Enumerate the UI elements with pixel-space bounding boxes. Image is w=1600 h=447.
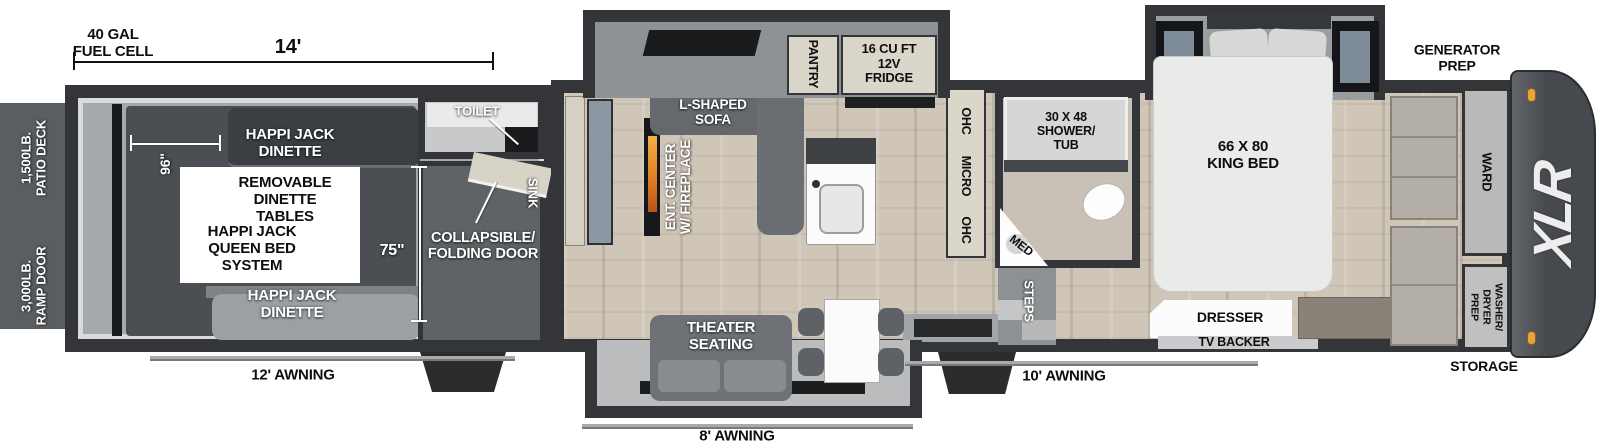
sofa-chaise [757, 93, 804, 235]
front-wardrobe-lower [1390, 226, 1458, 346]
clearance-light-bottom [1527, 331, 1536, 345]
washer-dryer-label: WASHER/ DRYER PREP [1468, 283, 1503, 331]
fireplace-flame [648, 136, 657, 212]
theater-label: THEATER SEATING [687, 320, 755, 354]
dim-75-tick-top [411, 166, 427, 168]
dim-75-label: 75" [380, 242, 405, 260]
chair-3 [878, 308, 904, 336]
sink-label: SINK [525, 178, 540, 208]
steps-label: STEPS [1021, 280, 1036, 322]
wardrobe-shelf-2 [1392, 176, 1456, 178]
wardrobe-shelf-3 [1392, 284, 1456, 286]
clearance-light-top [1527, 88, 1536, 102]
skylight [643, 30, 761, 56]
dim-14-tick-right [492, 52, 494, 70]
awning-12-label: 12' AWNING [251, 368, 335, 385]
awning-8-label: 8' AWNING [699, 429, 774, 446]
step-tread-2 [1022, 320, 1056, 340]
dim-75-tick-bottom [411, 320, 427, 322]
theater-cushion-right [724, 360, 786, 392]
dim-96-line [131, 143, 221, 145]
entry-cabinet [565, 96, 585, 246]
bedroom-cabinet [1298, 297, 1400, 339]
front-wardrobe-upper [1390, 96, 1458, 220]
ent-center-label: ENT. CENTER W/ FIREPLACE [663, 140, 693, 234]
ramp-door-label: 3,000LB. RAMP DOOR [19, 247, 48, 326]
headboard [1207, 13, 1331, 29]
dinette-table [824, 299, 880, 383]
dim-96-label: 96" [158, 153, 174, 175]
kitchen-sink [819, 184, 864, 234]
pantry-label: PANTRY [806, 40, 820, 89]
sofa-label: L-SHAPED SOFA [679, 97, 746, 127]
chair-1 [798, 308, 824, 336]
awning-10-bar [905, 361, 1258, 366]
dim-14-line [74, 61, 494, 63]
kitchen-island-back [806, 138, 876, 164]
awning-12-bar [150, 356, 515, 361]
tv-backer-label: TV BACKER [1198, 335, 1269, 349]
generator-prep-label: GENERATOR PREP [1414, 42, 1500, 73]
ramp-door-frame [112, 104, 122, 336]
toilet-fixture [505, 127, 538, 152]
floorplan-canvas: 40 GAL FUEL CELL 14' GENERATOR PREP 1,50… [0, 0, 1600, 447]
ohc-right-label: OHC [959, 216, 973, 243]
patio-deck-label: 1,500LB. PATIO DECK [19, 120, 48, 196]
removable-tables-label: REMOVABLE DINETTE TABLES [239, 175, 332, 225]
dim-75-line [419, 167, 421, 322]
fridge-counter [845, 97, 935, 108]
fuel-cell-label: 40 GAL FUEL CELL [73, 27, 153, 61]
toilet-label: TOILET [455, 105, 500, 120]
ward-label: WARD [1479, 153, 1494, 192]
dim-96-tick-left [130, 135, 132, 151]
chair-4 [878, 348, 904, 376]
storage-label: STORAGE [1450, 359, 1518, 375]
dinette-top-label: HAPPI JACK DINETTE [246, 127, 335, 161]
chair-2 [798, 348, 824, 376]
dinette-bottom-label: HAPPI JACK DINETTE [248, 288, 337, 322]
dim-14-tick-left [73, 52, 75, 70]
queen-bed-label: HAPPI JACK QUEEN BED SYSTEM [208, 224, 297, 274]
brand-logo: XLR [1523, 159, 1583, 269]
cooktop [914, 319, 992, 337]
dresser-label: DRESSER [1197, 310, 1263, 326]
bedroom-window-right-glass [1340, 31, 1370, 83]
shower-ledge [1004, 160, 1128, 172]
awning-10-label: 10' AWNING [1022, 369, 1106, 386]
fridge-label: 16 CU FT 12V FRIDGE [862, 42, 917, 86]
entry-door [587, 99, 613, 245]
main-entry-step [938, 352, 1016, 394]
folding-door-label: COLLAPSIBLE/ FOLDING DOOR [428, 230, 538, 262]
shower-label: 30 X 48 SHOWER/ TUB [1037, 110, 1095, 152]
theater-cushion-left [658, 360, 720, 392]
ohc-left-label: OHC [959, 107, 973, 134]
dim-14-label: 14' [275, 36, 301, 58]
dim-96-tick-right [219, 135, 221, 151]
micro-label: MICRO [959, 156, 973, 197]
king-bed-label: 66 X 80 KING BED [1207, 139, 1279, 173]
wardrobe-shelf-1 [1392, 136, 1456, 138]
kitchen-faucet [812, 180, 820, 188]
king-bed [1153, 56, 1333, 292]
